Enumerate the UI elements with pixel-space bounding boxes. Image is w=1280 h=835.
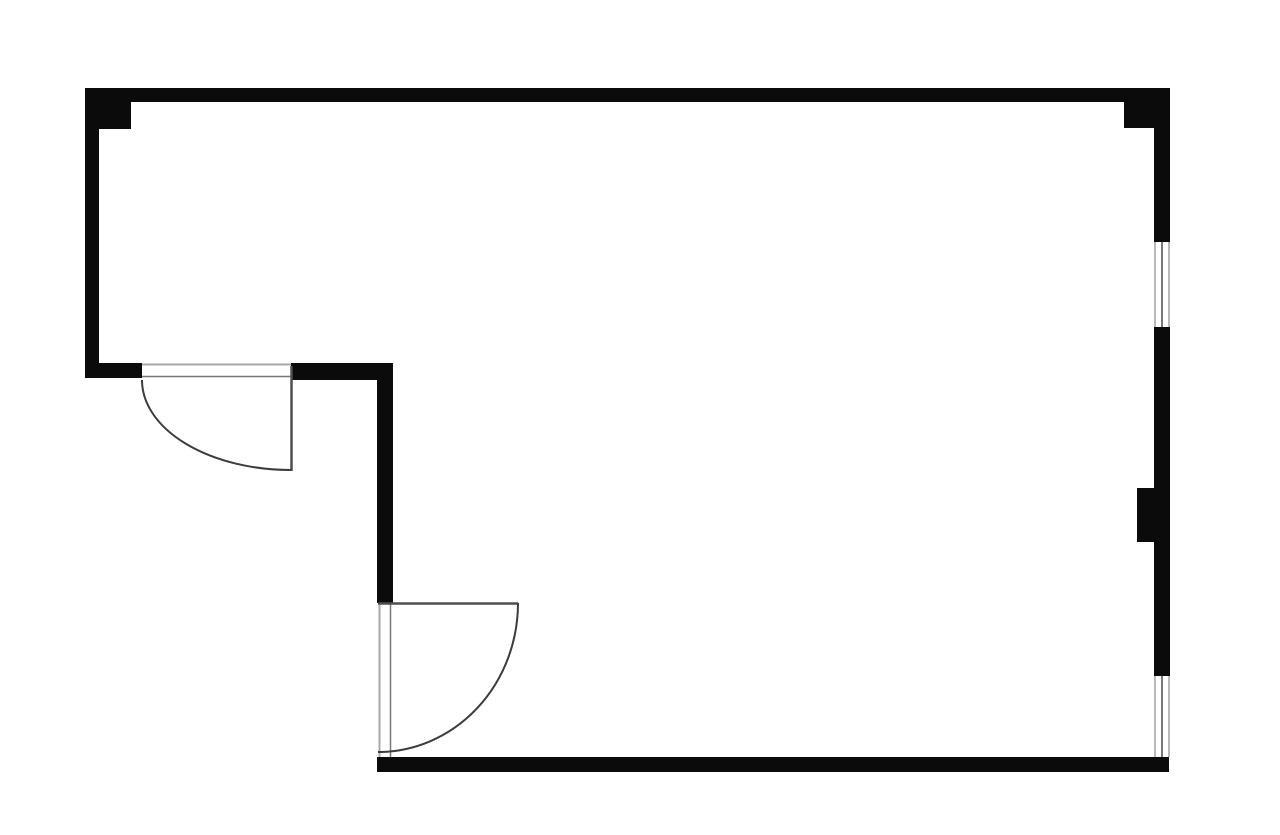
doors-layer — [142, 365, 518, 758]
right-wall-upper — [1154, 88, 1170, 242]
door-bottom — [378, 603, 518, 757]
right-wall-mid — [1154, 327, 1170, 488]
floor-plan — [0, 0, 1280, 835]
window-right-lower — [1154, 676, 1170, 757]
interior-vertical-wall — [377, 363, 393, 603]
door-bottom-swing-arc — [378, 603, 518, 752]
walls-layer — [85, 88, 1170, 772]
door-left — [142, 365, 292, 472]
bottom-wall — [377, 757, 1169, 772]
left-wall — [85, 88, 99, 378]
floor-plan-canvas — [0, 0, 1280, 835]
door-left-swing-arc — [142, 380, 291, 470]
right-wall-pier — [1137, 488, 1170, 542]
top-wall — [85, 88, 1170, 102]
window-right-upper — [1154, 242, 1170, 327]
right-wall-lower — [1154, 542, 1170, 676]
left-door-jamb-wall — [85, 363, 142, 378]
